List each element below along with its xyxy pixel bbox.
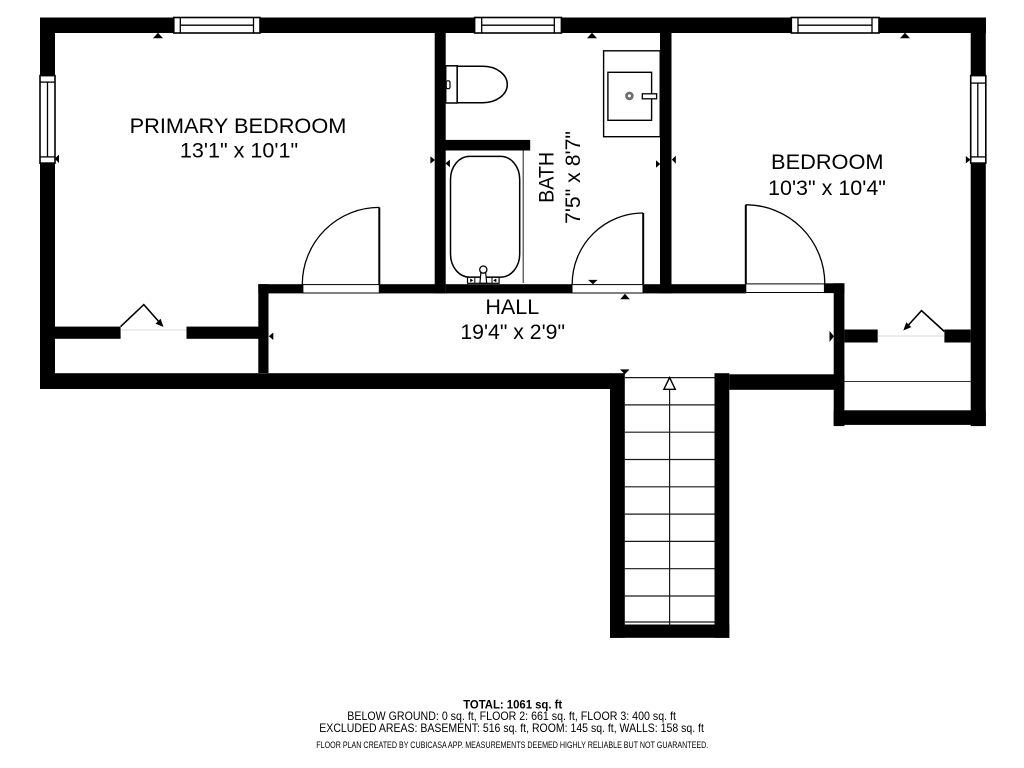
svg-text:BEDROOM: BEDROOM (771, 150, 884, 174)
svg-text:FLOOR PLAN CREATED BY CUBICASA: FLOOR PLAN CREATED BY CUBICASA APP. MEAS… (316, 740, 708, 750)
svg-text:BATH: BATH (535, 152, 559, 203)
svg-text:10'3" x 10'4": 10'3" x 10'4" (768, 176, 886, 200)
svg-text:EXCLUDED AREAS: BASEMENT: 516: EXCLUDED AREAS: BASEMENT: 516 sq. ft, RO… (319, 721, 704, 735)
svg-text:PRIMARY BEDROOM: PRIMARY BEDROOM (130, 114, 347, 138)
svg-text:7'5" x 8'7": 7'5" x 8'7" (561, 131, 585, 224)
svg-text:19'4" x 2'9": 19'4" x 2'9" (460, 320, 565, 344)
svg-text:13'1" x 10'1": 13'1" x 10'1" (180, 139, 298, 163)
svg-text:HALL: HALL (485, 295, 539, 319)
